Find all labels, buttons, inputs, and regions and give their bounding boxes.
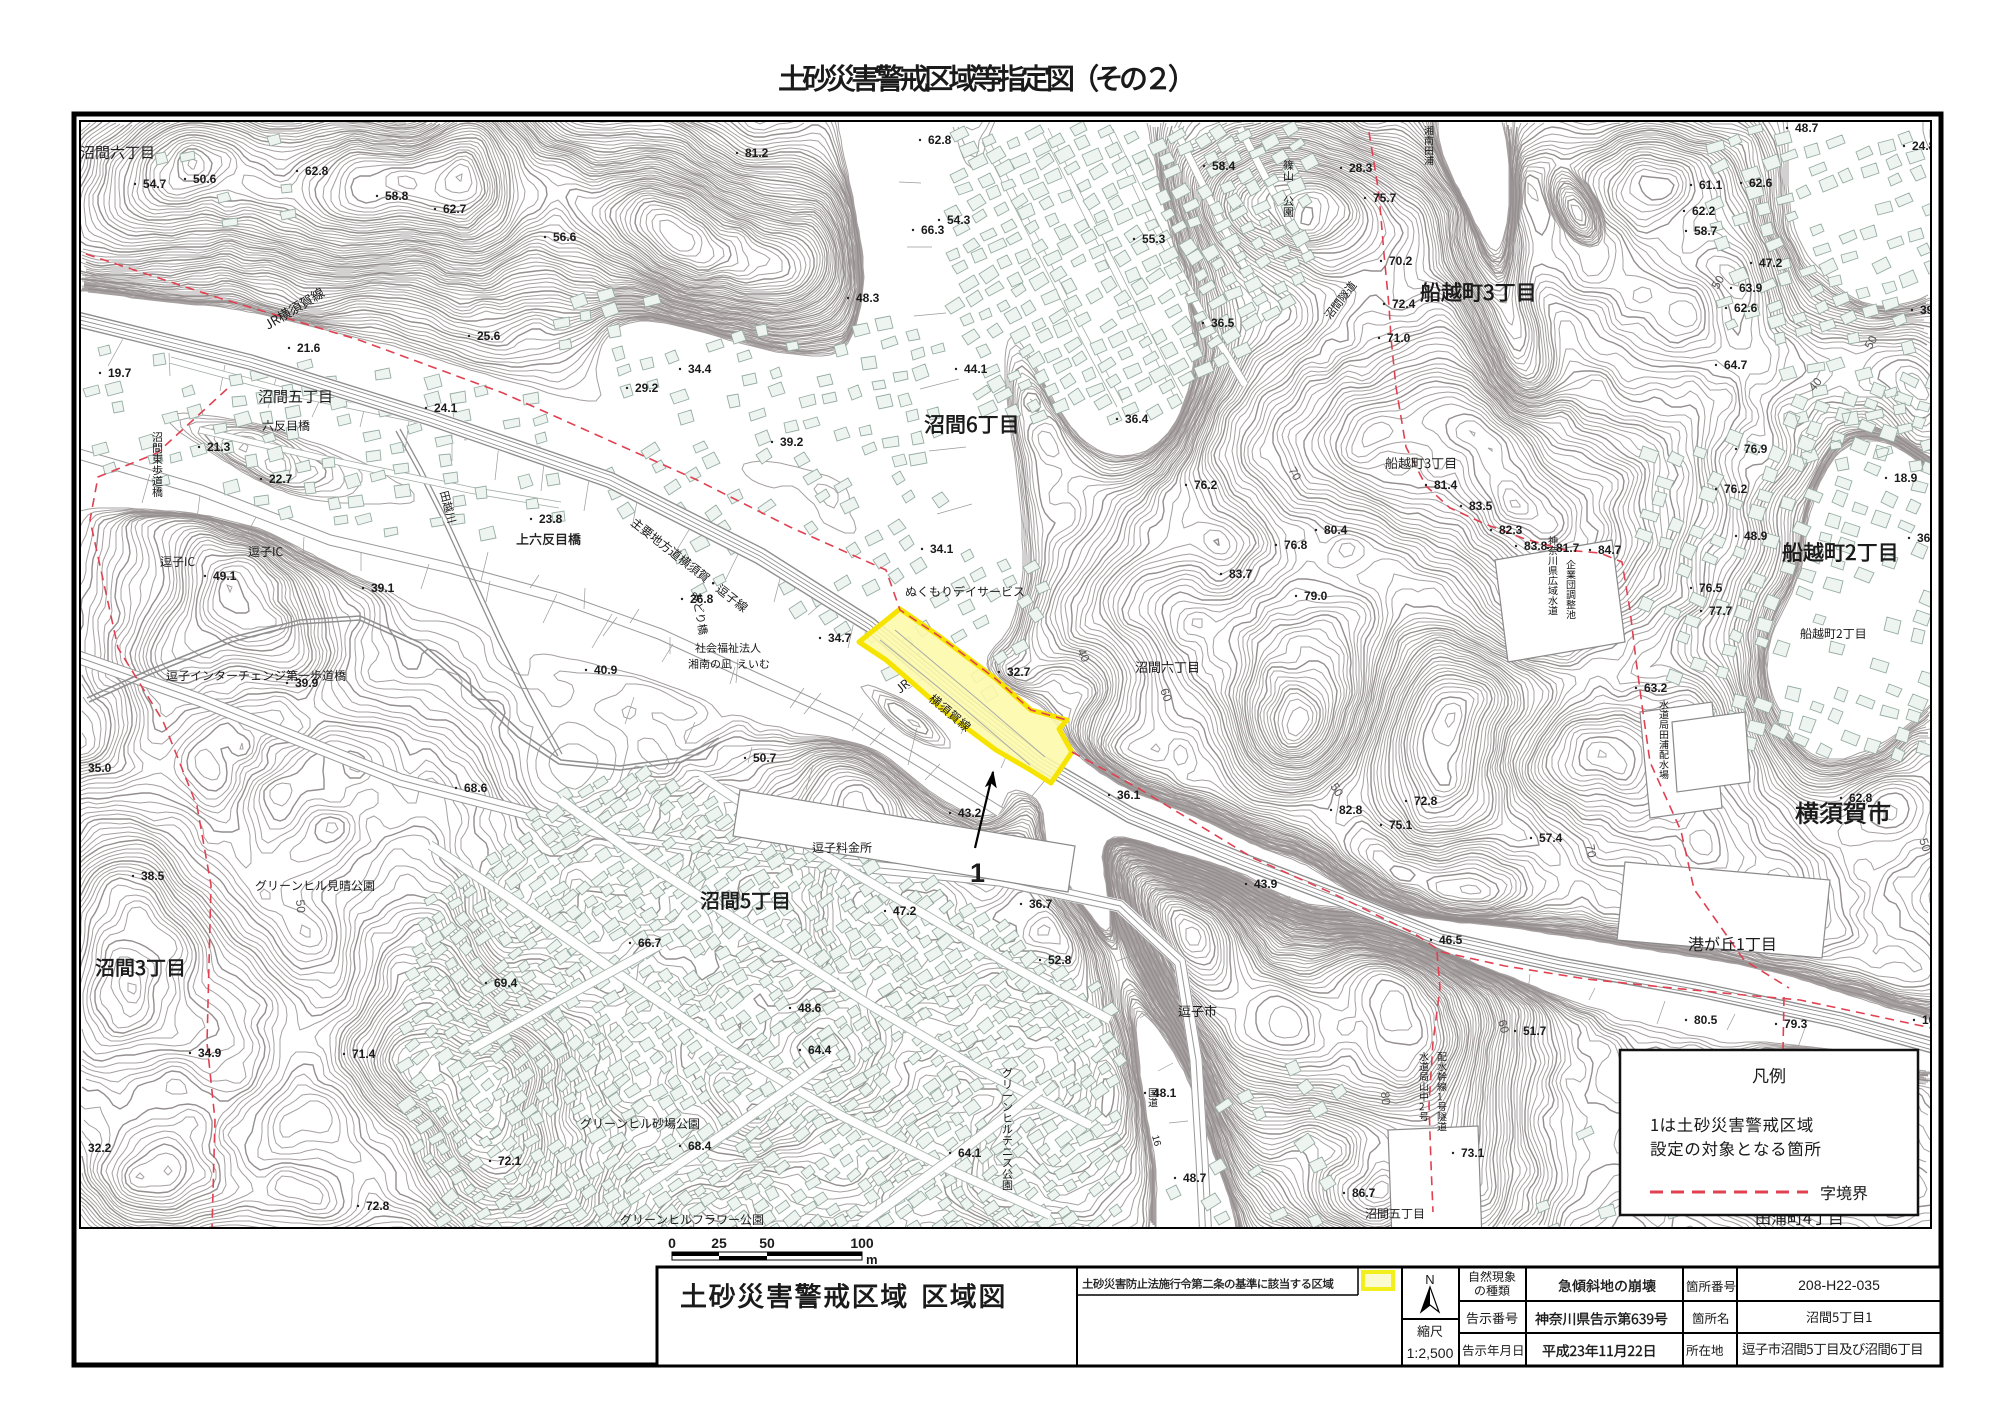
svg-text:52.8: 52.8 <box>1048 953 1072 967</box>
svg-text:48.6: 48.6 <box>798 1001 822 1015</box>
svg-text:79.0: 79.0 <box>1304 589 1328 603</box>
svg-text:81.7: 81.7 <box>1556 541 1580 555</box>
svg-text:72.8: 72.8 <box>366 1199 390 1213</box>
svg-text:43.2: 43.2 <box>958 806 982 820</box>
svg-text:64.7: 64.7 <box>1724 358 1748 372</box>
svg-text:48.7: 48.7 <box>1183 1171 1207 1185</box>
svg-text:58.8: 58.8 <box>385 189 409 203</box>
svg-text:83.5: 83.5 <box>1469 499 1493 513</box>
svg-text:48.9: 48.9 <box>1744 529 1768 543</box>
svg-text:69.4: 69.4 <box>494 976 518 990</box>
svg-text:36.7: 36.7 <box>1029 897 1053 911</box>
svg-text:54.3: 54.3 <box>947 213 971 227</box>
svg-text:39.2: 39.2 <box>780 435 804 449</box>
svg-text:57.4: 57.4 <box>1539 831 1563 845</box>
svg-text:46.5: 46.5 <box>1439 933 1463 947</box>
svg-text:36.1: 36.1 <box>1117 788 1141 802</box>
svg-text:55.3: 55.3 <box>1142 232 1166 246</box>
svg-text:68.6: 68.6 <box>464 781 488 795</box>
svg-text:19.7: 19.7 <box>108 366 132 380</box>
svg-text:25.6: 25.6 <box>477 329 501 343</box>
svg-text:50.6: 50.6 <box>193 172 217 186</box>
svg-text:83.7: 83.7 <box>1229 567 1253 581</box>
svg-text:76.8: 76.8 <box>1284 538 1308 552</box>
svg-text:21.3: 21.3 <box>207 440 231 454</box>
svg-text:70.2: 70.2 <box>1389 254 1413 268</box>
svg-text:72.1: 72.1 <box>498 1154 522 1168</box>
svg-text:25: 25 <box>711 1235 727 1251</box>
svg-text:34.7: 34.7 <box>828 631 852 645</box>
svg-text:73.1: 73.1 <box>1461 1146 1485 1160</box>
svg-text:29.2: 29.2 <box>635 381 659 395</box>
svg-text:34.1: 34.1 <box>930 542 954 556</box>
svg-text:47.2: 47.2 <box>1759 256 1783 270</box>
svg-text:21.6: 21.6 <box>297 341 321 355</box>
svg-text:81.2: 81.2 <box>745 146 769 160</box>
svg-text:49.1: 49.1 <box>213 569 237 583</box>
svg-text:64.1: 64.1 <box>958 1146 982 1160</box>
svg-text:1:2,500: 1:2,500 <box>1407 1345 1454 1361</box>
svg-text:m: m <box>866 1252 878 1267</box>
svg-text:34.9: 34.9 <box>198 1046 222 1060</box>
svg-text:66.7: 66.7 <box>638 936 662 950</box>
svg-text:64.4: 64.4 <box>808 1043 832 1057</box>
svg-text:23.8: 23.8 <box>539 512 563 526</box>
svg-text:76.5: 76.5 <box>1699 581 1723 595</box>
svg-text:47.2: 47.2 <box>893 904 917 918</box>
svg-text:75.7: 75.7 <box>1373 191 1397 205</box>
svg-text:100: 100 <box>850 1235 874 1251</box>
svg-text:58.7: 58.7 <box>1694 224 1718 238</box>
svg-text:24.1: 24.1 <box>434 401 458 415</box>
svg-text:62.8: 62.8 <box>305 164 329 178</box>
svg-text:84.7: 84.7 <box>1598 543 1622 557</box>
svg-text:28.3: 28.3 <box>1349 161 1373 175</box>
svg-text:44.1: 44.1 <box>964 362 988 376</box>
svg-text:39.1: 39.1 <box>371 581 395 595</box>
svg-text:18.9: 18.9 <box>1894 471 1918 485</box>
svg-text:66.3: 66.3 <box>921 223 945 237</box>
svg-text:62.6: 62.6 <box>1749 176 1773 190</box>
svg-text:70: 70 <box>1583 843 1599 859</box>
svg-text:75.1: 75.1 <box>1389 818 1413 832</box>
svg-text:58.4: 58.4 <box>1212 159 1236 173</box>
svg-text:36.4: 36.4 <box>1125 412 1149 426</box>
svg-text:72.8: 72.8 <box>1414 794 1438 808</box>
svg-text:80.4: 80.4 <box>1324 523 1348 537</box>
svg-text:76.2: 76.2 <box>1194 478 1218 492</box>
svg-text:32.2: 32.2 <box>88 1141 112 1155</box>
svg-text:62.7: 62.7 <box>443 202 467 216</box>
svg-text:50: 50 <box>293 899 308 914</box>
svg-text:208-H22-035: 208-H22-035 <box>1798 1277 1880 1293</box>
svg-text:86.7: 86.7 <box>1352 1186 1376 1200</box>
svg-text:54.7: 54.7 <box>143 177 167 191</box>
svg-text:1: 1 <box>970 858 985 888</box>
svg-text:63.2: 63.2 <box>1644 681 1668 695</box>
svg-text:22.7: 22.7 <box>269 472 293 486</box>
svg-text:82.3: 82.3 <box>1499 523 1523 537</box>
svg-text:43.9: 43.9 <box>1254 877 1278 891</box>
svg-text:35.0: 35.0 <box>88 761 112 775</box>
svg-text:62.2: 62.2 <box>1692 204 1716 218</box>
svg-text:71.4: 71.4 <box>352 1047 376 1061</box>
svg-text:38.5: 38.5 <box>141 869 165 883</box>
svg-text:50.7: 50.7 <box>753 751 777 765</box>
svg-text:82.8: 82.8 <box>1339 803 1363 817</box>
svg-text:56.6: 56.6 <box>553 230 577 244</box>
svg-text:83.8: 83.8 <box>1524 539 1548 553</box>
svg-text:50: 50 <box>759 1235 775 1251</box>
svg-text:62.8: 62.8 <box>928 133 952 147</box>
svg-text:71.0: 71.0 <box>1387 331 1411 345</box>
svg-text:79.3: 79.3 <box>1784 1017 1808 1031</box>
svg-text:63.9: 63.9 <box>1739 281 1763 295</box>
svg-text:72.4: 72.4 <box>1392 297 1416 311</box>
svg-text:80: 80 <box>1378 1091 1393 1106</box>
svg-text:68.4: 68.4 <box>688 1139 712 1153</box>
svg-text:76.9: 76.9 <box>1744 442 1768 456</box>
svg-text:0: 0 <box>668 1235 676 1251</box>
svg-text:36.5: 36.5 <box>1211 316 1235 330</box>
svg-text:81.4: 81.4 <box>1434 478 1458 492</box>
svg-text:34.4: 34.4 <box>688 362 712 376</box>
svg-text:32.7: 32.7 <box>1007 665 1031 679</box>
svg-text:51.7: 51.7 <box>1523 1024 1547 1038</box>
svg-text:77.7: 77.7 <box>1709 604 1733 618</box>
svg-text:61.1: 61.1 <box>1699 178 1723 192</box>
svg-text:80.5: 80.5 <box>1694 1013 1718 1027</box>
svg-text:N: N <box>1425 1272 1434 1287</box>
svg-text:62.6: 62.6 <box>1734 301 1758 315</box>
svg-text:48.3: 48.3 <box>856 291 880 305</box>
svg-text:40.9: 40.9 <box>594 663 618 677</box>
svg-text:48.7: 48.7 <box>1795 121 1819 135</box>
svg-text:76.2: 76.2 <box>1724 482 1748 496</box>
